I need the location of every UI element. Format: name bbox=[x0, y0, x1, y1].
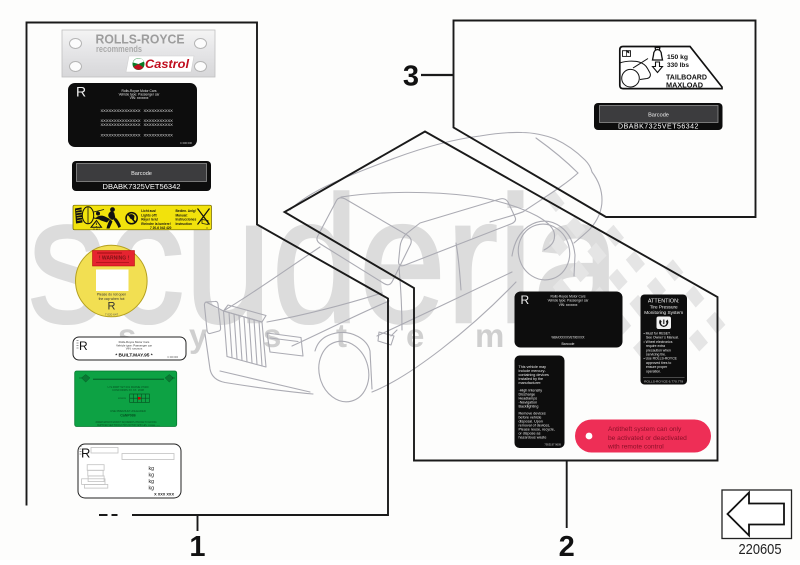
svg-text:x 000 000: x 000 000 bbox=[150, 426, 160, 428]
svg-text:Castrol: Castrol bbox=[145, 59, 190, 71]
svg-text:Tire Pressure: Tire Pressure bbox=[650, 304, 678, 309]
svg-text:R: R bbox=[108, 301, 116, 313]
svg-text:3: 3 bbox=[403, 61, 419, 93]
svg-text:X XXX XXX: X XXX XXX bbox=[154, 493, 174, 497]
svg-text:CaNP086: CaNP086 bbox=[120, 414, 136, 418]
svg-text:XXXXXXXXXXXXXXX: XXXXXXXXXXXXXXX bbox=[101, 108, 141, 113]
svg-text:e: e bbox=[406, 317, 424, 354]
svg-text:R: R bbox=[79, 339, 88, 353]
svg-text:Barcode: Barcode bbox=[131, 171, 152, 177]
svg-text:kg: kg bbox=[149, 466, 155, 472]
svg-text:DBABK7325VET56342: DBABK7325VET56342 bbox=[618, 123, 699, 130]
svg-text:7 20-6 042 420: 7 20-6 042 420 bbox=[150, 226, 172, 230]
svg-text:recommends: recommends bbox=[96, 44, 142, 54]
svg-text:m: m bbox=[475, 317, 504, 354]
svg-text:2: 2 bbox=[559, 531, 575, 560]
svg-text:Antitheft system can only: Antitheft system can only bbox=[608, 426, 682, 433]
svg-text:CONFORMS XX.XX. 2008: CONFORMS XX.XX. 2008 bbox=[112, 388, 144, 392]
svg-text:R: R bbox=[81, 446, 90, 461]
svg-text:XXXXXXXXXXX: XXXXXXXXXXX bbox=[144, 133, 174, 138]
svg-text:XXXXXXXXXXXXXXX: XXXXXXXXXXXXXXX bbox=[101, 122, 141, 127]
svg-text:MAXLOAD: MAXLOAD bbox=[666, 81, 703, 90]
svg-text:kg: kg bbox=[149, 479, 155, 485]
svg-text:VIN: xxxxxxx: VIN: xxxxxxx bbox=[130, 96, 149, 100]
svg-text:1: 1 bbox=[189, 531, 205, 560]
svg-text:with remote control: with remote control bbox=[607, 444, 664, 451]
svg-text:330 lbs: 330 lbs bbox=[667, 62, 689, 69]
svg-text:manufacturer:: manufacturer: bbox=[519, 381, 542, 385]
svg-text:Barcode: Barcode bbox=[561, 342, 574, 346]
svg-text:R: R bbox=[521, 293, 530, 307]
svg-text:WBAXXXXXXVET00XXXX: WBAXXXXXXVET00XXXX bbox=[552, 336, 585, 340]
svg-text:Monitoring System: Monitoring System bbox=[644, 310, 683, 315]
svg-text:! WARNING !: ! WARNING ! bbox=[99, 256, 130, 262]
svg-text:C 000 000: C 000 000 bbox=[180, 141, 193, 145]
svg-text:220605: 220605 bbox=[739, 541, 782, 558]
svg-text:USE PREMIUM UNLEADED: USE PREMIUM UNLEADED bbox=[110, 409, 146, 413]
svg-text:hazardous waste: hazardous waste bbox=[519, 436, 547, 440]
svg-text:ROLLS-ROYCE 6.770.778: ROLLS-ROYCE 6.770.778 bbox=[644, 380, 683, 384]
svg-text:Backlighting: Backlighting bbox=[519, 405, 539, 409]
svg-text:kg: kg bbox=[149, 485, 155, 491]
svg-text:7 020 647: 7 020 647 bbox=[105, 313, 119, 317]
svg-text:VIN: xxxxxxx: VIN: xxxxxxx bbox=[126, 347, 143, 351]
svg-text:operation.: operation. bbox=[646, 369, 661, 373]
svg-text:Instruction: Instruction bbox=[176, 222, 193, 226]
svg-text:CERTIFIED NEW PRODUCTION MOTOR: CERTIFIED NEW PRODUCTION MOTOR VEHICLES.… bbox=[97, 424, 156, 427]
svg-text:DBABK7325VET56342: DBABK7325VET56342 bbox=[103, 182, 181, 191]
svg-text:* BUILT.MAY.95 *: * BUILT.MAY.95 * bbox=[115, 353, 152, 359]
svg-text:7953197 9609: 7953197 9609 bbox=[544, 443, 561, 447]
svg-text:C 000 000: C 000 000 bbox=[167, 357, 178, 359]
svg-text:XXXXXXXXXXXXXXX: XXXXXXXXXXXXXXX bbox=[101, 133, 141, 138]
svg-text:150 kg: 150 kg bbox=[667, 54, 688, 61]
svg-text:s: s bbox=[263, 317, 281, 354]
svg-text:Barcode: Barcode bbox=[648, 113, 669, 119]
svg-text:be activated or deactivated: be activated or deactivated bbox=[608, 435, 687, 442]
svg-text:21 08 1: 21 08 1 bbox=[93, 229, 101, 231]
svg-text:xxxxxx: xxxxxx bbox=[118, 397, 127, 400]
svg-text:XXXXXXXXXXX: XXXXXXXXXXX bbox=[144, 122, 174, 127]
svg-text:VIN: xxxxxxx: VIN: xxxxxxx bbox=[559, 303, 578, 307]
svg-text:R: R bbox=[76, 84, 86, 100]
svg-text:kg: kg bbox=[149, 473, 155, 479]
svg-text:XXXXXXXXXXX: XXXXXXXXXXX bbox=[144, 108, 174, 113]
